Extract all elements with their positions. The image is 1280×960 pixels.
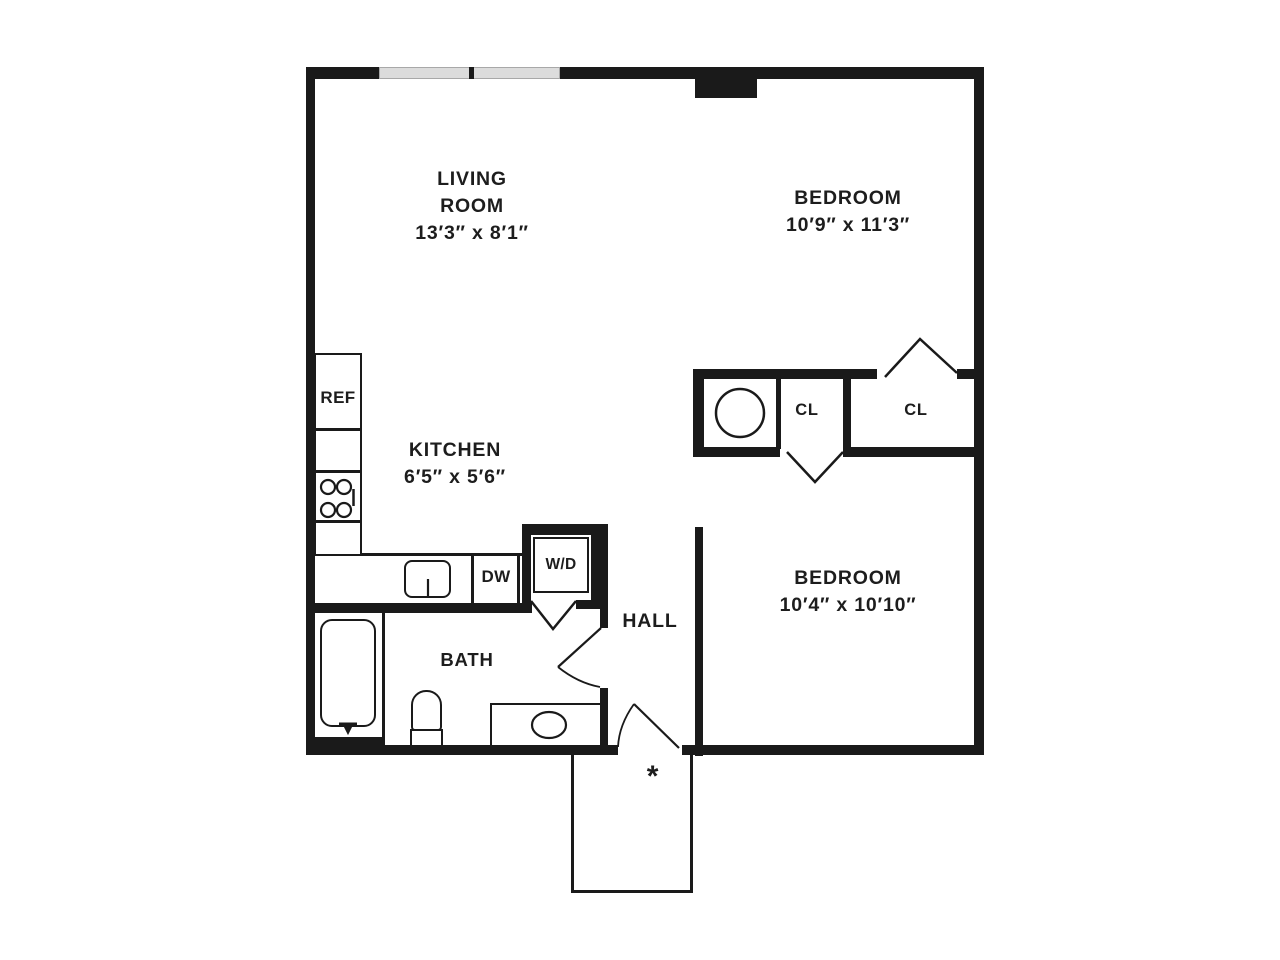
counter-bottom-wall: [306, 603, 532, 613]
wd-closet-wall-bottom: [576, 600, 608, 609]
bath-label: BATH: [417, 649, 517, 671]
tub-platform-band: [306, 737, 385, 747]
wd-door-swing-icon: [531, 601, 576, 629]
kitchen-label: KITCHEN: [355, 437, 555, 464]
living-room-label-line2: ROOM: [372, 193, 572, 220]
living-room-label-line1: LIVING: [372, 166, 572, 193]
closet-small-door-swing-icon: [787, 452, 843, 482]
kitchen-sink-icon: [404, 560, 451, 598]
hall-bedroom-wall: [695, 527, 703, 756]
entry-door-swing-icon: [618, 704, 679, 748]
wall-stub-top: [695, 67, 757, 98]
bedroom-top-dimensions: 10′9″ x 11′3″: [748, 212, 948, 239]
bedroom-bottom-label: BEDROOM: [748, 565, 948, 592]
bedroom-top-label: BEDROOM: [748, 185, 948, 212]
wall-right: [974, 67, 984, 755]
living-room-dimensions: 13′3″ x 8′1″: [372, 220, 572, 247]
dishwasher-label: DW: [471, 567, 521, 587]
cabinet-divider-1: [314, 428, 362, 431]
wd-closet-wall-right: [591, 524, 608, 609]
tub-surround-line: [382, 609, 385, 737]
wd-closet-wall-left: [522, 524, 531, 604]
cabinet-divider-3: [314, 520, 362, 523]
wall-top-right: [560, 67, 984, 79]
window-mullion: [469, 67, 474, 79]
entry-stoop: [571, 752, 693, 893]
wall-bottom-right: [682, 745, 984, 755]
counter-top-edge: [360, 553, 522, 556]
toilet-tank: [410, 729, 443, 749]
floor-plan: LIVING ROOM 13′3″ x 8′1″ BEDROOM 10′9″ x…: [0, 0, 1280, 960]
water-heater-inner-line: [778, 377, 781, 449]
closet-large-label: CL: [891, 401, 941, 420]
water-heater-box: [702, 377, 778, 449]
toilet-icon: [411, 690, 442, 731]
bedroom-bottom-dimensions: 10′4″ x 10′10″: [748, 592, 948, 619]
wall-top-left: [306, 67, 379, 79]
hall-label: HALL: [600, 610, 700, 633]
closet-divider-wall: [843, 369, 851, 457]
refrigerator-label: REF: [313, 388, 363, 408]
closet-large-door-swing-icon: [885, 339, 957, 377]
bath-door-swing-icon: [558, 628, 601, 687]
washer-dryer-label: W/D: [536, 556, 586, 574]
bathtub-icon: [320, 619, 376, 727]
closet-wall-top-right: [957, 369, 984, 379]
entry-marker: *: [633, 760, 673, 794]
vanity-counter: [490, 703, 603, 747]
closet-wall-bottom-right: [843, 447, 984, 457]
kitchen-dimensions: 6′5″ x 5′6″: [355, 464, 555, 491]
water-heater-closet-wall: [693, 369, 702, 457]
closet-small-label: CL: [782, 401, 832, 420]
